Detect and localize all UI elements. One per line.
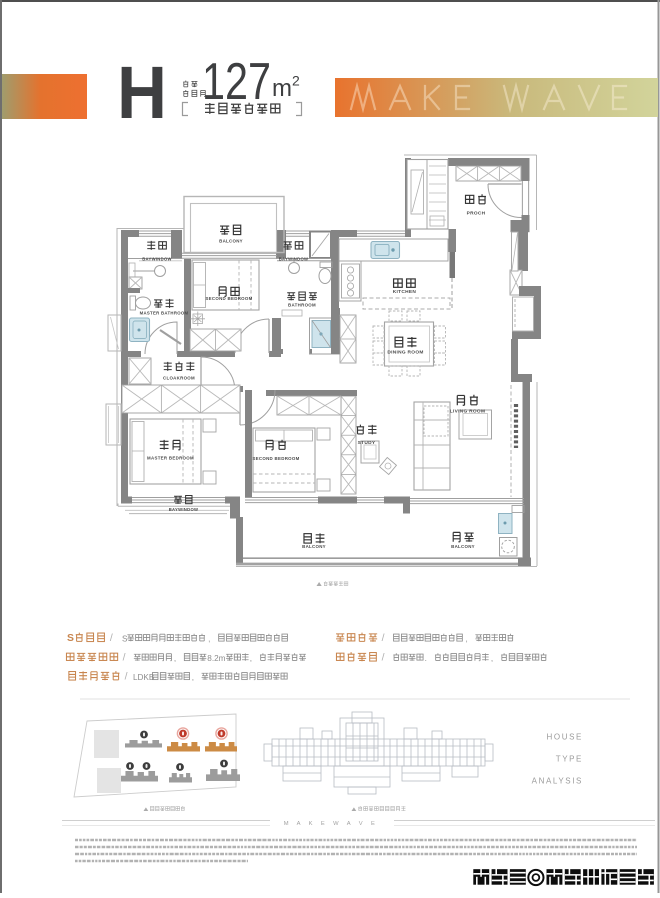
svg-text:LIVING ROOM: LIVING ROOM (450, 409, 486, 415)
svg-text:BAYWINDOW: BAYWINDOW (142, 257, 172, 262)
svg-text:BALCONY: BALCONY (219, 239, 243, 244)
svg-text:,: , (250, 654, 252, 663)
svg-text:/: / (110, 633, 113, 644)
svg-text:LDKB: LDKB (133, 673, 155, 682)
svg-text:,: , (466, 634, 468, 643)
svg-text:,: , (192, 673, 194, 682)
svg-text:ANALYSIS: ANALYSIS (532, 777, 583, 786)
svg-text:PROCH: PROCH (467, 211, 486, 217)
svg-text:H: H (117, 51, 167, 134)
svg-text:KITCHEN: KITCHEN (393, 289, 417, 295)
svg-text:S: S (67, 633, 74, 644)
svg-text:/: / (382, 653, 385, 664)
svg-text:.: . (425, 654, 427, 663)
svg-text:/: / (382, 633, 385, 644)
svg-text:127: 127 (202, 53, 271, 111)
svg-text:BAYWINDOW: BAYWINDOW (279, 257, 309, 262)
svg-text:/: / (123, 653, 126, 664)
svg-text:/: / (125, 672, 128, 683)
svg-text:SECOND BEDROOM: SECOND BEDROOM (252, 456, 299, 461)
svg-text:TYPE: TYPE (556, 755, 583, 764)
svg-text:BATHROOM: BATHROOM (288, 303, 316, 308)
svg-text:HOUSE: HOUSE (547, 733, 583, 742)
svg-text:,: , (491, 654, 493, 663)
svg-text:S: S (122, 634, 128, 643)
svg-text:,: , (174, 654, 176, 663)
svg-text:MASTER BATHROOM: MASTER BATHROOM (140, 311, 189, 316)
svg-text:CLOAKROOM: CLOAKROOM (163, 376, 195, 381)
svg-text:M A K E W A V E: M A K E W A V E (284, 821, 379, 827)
svg-text:MASTER BEDROOM: MASTER BEDROOM (147, 456, 194, 461)
svg-text:,: , (208, 634, 210, 643)
svg-text:8.2m: 8.2m (207, 654, 225, 663)
svg-text:BAYWINDOW: BAYWINDOW (169, 507, 199, 512)
svg-text:SECOND BEDROOM: SECOND BEDROOM (205, 296, 252, 301)
svg-text:m: m (272, 75, 292, 102)
svg-text:BALCONY: BALCONY (451, 544, 475, 549)
svg-text:DINING ROOM: DINING ROOM (387, 350, 423, 356)
svg-text:2: 2 (292, 73, 300, 89)
svg-text:STUDY: STUDY (358, 440, 376, 446)
svg-text:BALCONY: BALCONY (302, 544, 326, 549)
